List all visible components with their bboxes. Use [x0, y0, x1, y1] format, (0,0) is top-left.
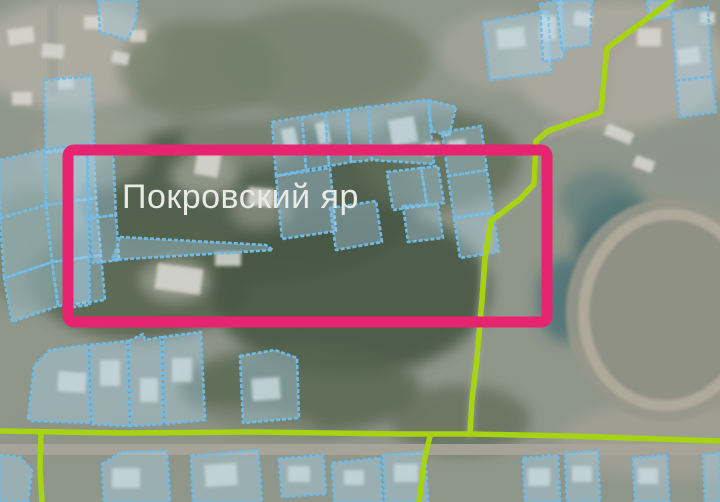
- building: [637, 28, 661, 46]
- parcel-outline[interactable]: [98, 0, 137, 40]
- parcel-outline[interactable]: [676, 76, 716, 117]
- parcel-outline[interactable]: [556, 0, 592, 49]
- building: [12, 92, 32, 105]
- building: [130, 30, 146, 42]
- building: [42, 43, 65, 59]
- area-label: Покровский яр: [122, 178, 359, 216]
- parcel-outline[interactable]: [565, 451, 600, 502]
- parcel-outline[interactable]: [163, 332, 205, 424]
- parcel-outline[interactable]: [191, 450, 262, 502]
- parcel-outline[interactable]: [703, 453, 720, 502]
- parcel-outline[interactable]: [90, 341, 129, 426]
- map-canvas[interactable]: Покровский яр: [0, 0, 720, 502]
- building: [215, 252, 241, 266]
- road-path: [0, 447, 720, 452]
- route-polyline: [40, 434, 42, 502]
- parcel-outline[interactable]: [129, 334, 163, 426]
- parcel-outline[interactable]: [633, 455, 669, 502]
- parcel-outline[interactable]: [332, 458, 382, 502]
- parcel-outline[interactable]: [102, 451, 170, 502]
- parcel-outline[interactable]: [403, 204, 443, 242]
- terrain-patch: [210, 5, 430, 115]
- parcel-outline[interactable]: [240, 350, 299, 423]
- parcel-outline[interactable]: [279, 455, 326, 497]
- parcel-outline[interactable]: [87, 148, 116, 218]
- parcel-outline[interactable]: [523, 455, 560, 502]
- parcel-outline[interactable]: [44, 76, 94, 153]
- map-viewport[interactable]: Покровский яр: [0, 0, 720, 502]
- parcel-outline[interactable]: [448, 170, 493, 218]
- parcel-outline[interactable]: [672, 7, 712, 81]
